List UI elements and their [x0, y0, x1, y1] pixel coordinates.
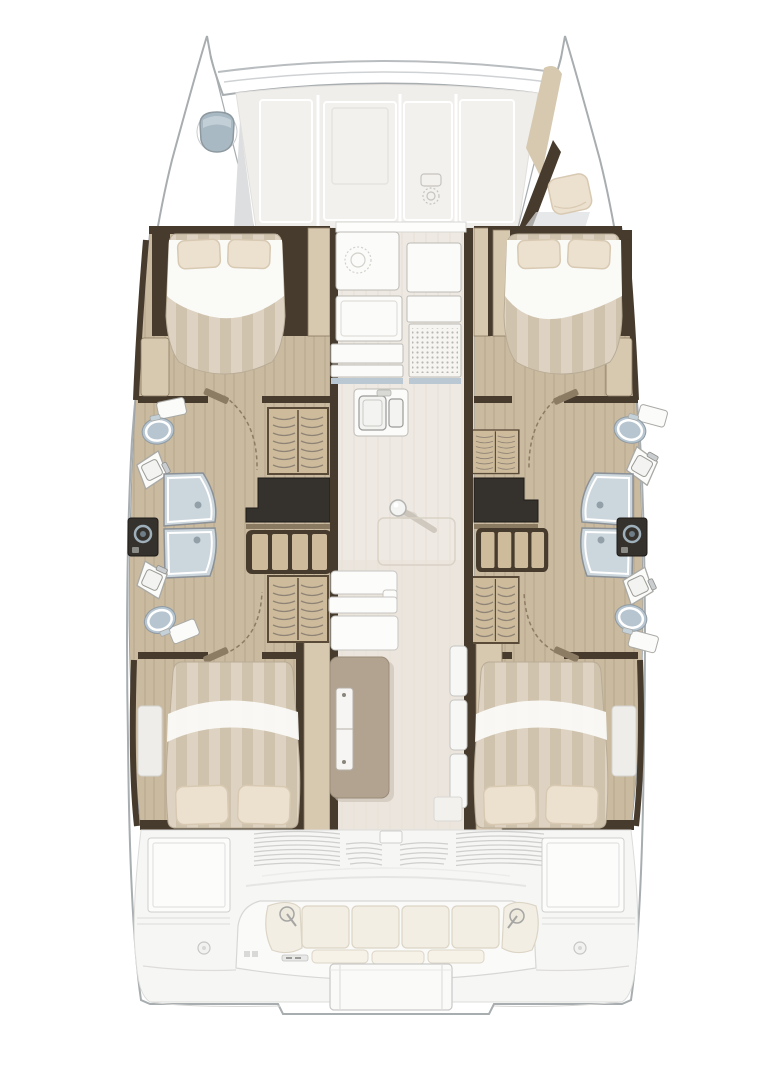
stbd-head-bulkhead-outboard [564, 396, 638, 403]
mast-post [390, 500, 406, 516]
salon-fwd-window-wall [336, 222, 466, 232]
starboard-cockpit-locker [542, 838, 624, 912]
deck-cleat-port-center [202, 946, 206, 950]
forward-crossbeam-arc [218, 61, 554, 72]
bench-back-cushion [302, 906, 349, 948]
shower-door-knob [598, 537, 605, 544]
galley-counter-edge [331, 378, 403, 384]
stbd-inboard-walkway-fwd [474, 228, 490, 336]
foredeck-panel [260, 100, 312, 222]
port-head-bulkhead-inboard [262, 396, 330, 403]
deck-cleat-starboard-center [578, 946, 582, 950]
port-inboard-walkway-aft [304, 642, 330, 830]
starboard-washer [617, 518, 647, 556]
starboard-salon-sideboard [450, 646, 467, 808]
pillow [518, 239, 561, 268]
shower-panel-lower [164, 528, 216, 578]
starboard-aft-berth [474, 662, 608, 828]
salon [329, 222, 473, 830]
port-hanging-locker-aft [268, 576, 328, 642]
port-aft-berth [166, 662, 300, 828]
foredeck [236, 85, 538, 229]
galley-drawer-bottom [331, 365, 403, 377]
galley-faucet [377, 390, 391, 396]
port-aft-side-shelf [138, 706, 162, 776]
catamaran-floor-plan [0, 0, 771, 1080]
stbd-hanging-locker-aft [472, 577, 519, 643]
bench-seat-cushion [312, 950, 368, 963]
port-hanging-locker-fwd [268, 408, 328, 474]
port-cabinet-shelf-edge [246, 524, 330, 529]
galley-counter-fwd [336, 232, 399, 290]
starboard-forward-berth [504, 234, 622, 374]
port-inboard-walkway-fwd [308, 228, 330, 336]
galley-counter-mid [336, 296, 402, 341]
stbd-hanging-locker-fwd [472, 430, 519, 474]
locker-lid [148, 838, 230, 912]
port-hull [128, 226, 332, 830]
deck-fitting [244, 951, 250, 957]
deck-fitting [252, 951, 258, 957]
bench-back-cushion [352, 906, 399, 948]
bench-back-cushion [402, 906, 449, 948]
galley-cabinet-stbd [407, 243, 461, 292]
stbd-head-bulkhead-inboard [474, 396, 512, 403]
salon-aft-step [434, 797, 462, 821]
settee-seat [329, 597, 397, 613]
shower-panel-upper [164, 473, 216, 526]
foredeck-panel [404, 102, 452, 220]
shower-door-knob [194, 537, 201, 544]
bench-seat-cushion [428, 950, 484, 963]
pillow [237, 785, 290, 825]
galley-sink-basin-small [389, 399, 403, 427]
pillow [567, 239, 610, 269]
cockpit-center-vent [380, 831, 402, 843]
pillow [545, 785, 598, 825]
stove-front-panel [407, 296, 461, 322]
galley-drawer-top [331, 344, 403, 363]
table-leaf-pin [342, 693, 346, 697]
port-fwd-side-shelf [141, 338, 169, 396]
table-leaf-pin [342, 760, 346, 764]
bench-back-cushion [452, 906, 499, 948]
stove-counter-edge [409, 378, 461, 384]
port-washer [128, 518, 158, 556]
bow-berth-cushion [547, 172, 594, 216]
salon-table [330, 657, 394, 802]
foredeck-panel [460, 100, 514, 222]
pillow [177, 239, 220, 269]
settee-chaise [331, 616, 398, 650]
shower-door-knob [195, 502, 202, 509]
shower-door-knob [597, 502, 604, 509]
port-charcoal-cabinet [246, 478, 330, 522]
cockpit [134, 830, 638, 1010]
forward-crossbeam-arc-inner [224, 72, 548, 82]
locker-lid [542, 838, 624, 912]
stbd-hull-steps [476, 528, 548, 572]
stbd-wardrobe-edge [488, 226, 493, 336]
pillow [483, 785, 536, 825]
stove-grill [412, 328, 458, 373]
salon-settee [329, 571, 398, 650]
port-hull-steps [246, 530, 332, 574]
port-cockpit-locker [148, 838, 230, 912]
pillow [175, 785, 228, 825]
swim-platform [330, 964, 452, 1010]
mast-post-highlight [394, 503, 399, 508]
bench-seat-cushion [372, 951, 424, 964]
platform-deck [330, 964, 452, 1010]
foredeck-panel [324, 102, 396, 220]
stbd-aft-side-shelf [612, 706, 636, 776]
pillow [228, 239, 271, 268]
port-forward-berth [166, 234, 285, 374]
starboard-hull [444, 226, 668, 830]
port-aft-head-bulkhead-outboard [138, 652, 208, 659]
